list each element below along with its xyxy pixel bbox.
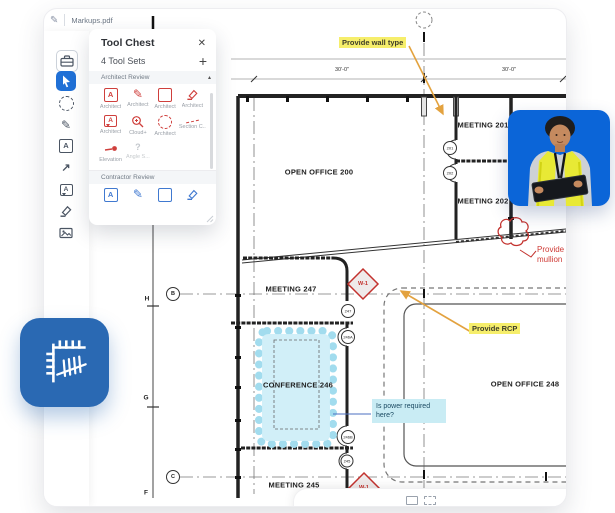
app-window: OPEN OFFICE 200 MEETING 201 MEETING 202 … bbox=[43, 8, 567, 507]
callout-icon: A bbox=[104, 115, 117, 127]
annotation-power-question[interactable]: Is power required here? bbox=[372, 399, 446, 423]
rectangle-icon bbox=[158, 188, 172, 202]
lasso-icon bbox=[59, 96, 74, 111]
door-tag: 246A bbox=[343, 335, 352, 340]
tab-title: Markups.pdf bbox=[71, 16, 112, 25]
room-label-meeting-202: MEETING 202 bbox=[458, 197, 509, 206]
text-box-icon: A bbox=[59, 139, 73, 153]
annotation-provide-mullion[interactable]: Provide mullion bbox=[537, 245, 564, 264]
ruler-letter-g: G bbox=[143, 395, 148, 402]
page-view-icon[interactable] bbox=[406, 496, 418, 505]
room-label-meeting-247: MEETING 247 bbox=[266, 285, 317, 294]
tool-architect-cloud[interactable]: Architect bbox=[152, 115, 179, 139]
worker-illustration bbox=[508, 110, 610, 206]
tool-architect-highlighter[interactable]: Architect bbox=[179, 88, 206, 112]
door-tag: 247 bbox=[345, 309, 352, 314]
annotation-provide-rcp[interactable]: Provide RCP bbox=[469, 323, 520, 334]
worker-photo-card bbox=[508, 110, 610, 206]
tool-architect-rectangle[interactable]: Architect bbox=[152, 88, 179, 112]
door-tag: 201 bbox=[447, 146, 454, 151]
takeoff-ruler-icon bbox=[34, 332, 96, 394]
markup-toolbar: ✎ A ↗ A bbox=[44, 31, 89, 506]
ruler-letter-h: H bbox=[145, 296, 150, 303]
section-line-icon bbox=[186, 120, 199, 124]
select-tool-button[interactable] bbox=[56, 71, 76, 91]
dimension-label: 30'-0" bbox=[502, 67, 516, 73]
pen-icon: ✎ bbox=[133, 188, 143, 200]
scroll-up-icon[interactable]: ▴ bbox=[208, 74, 211, 81]
grid-bubble-c: C bbox=[171, 474, 175, 480]
magnifier-plus-icon bbox=[131, 115, 144, 128]
section-contractor-review[interactable]: Contractor Review bbox=[89, 171, 216, 184]
add-tool-set-button[interactable]: + bbox=[199, 56, 207, 66]
pen-icon: ✎ bbox=[61, 119, 71, 131]
tool-chest-icon bbox=[58, 52, 76, 70]
highlighter-tool-button[interactable] bbox=[56, 201, 76, 221]
cloud-icon bbox=[158, 115, 172, 129]
question-mark-icon: ? bbox=[135, 142, 141, 152]
panel-title: Tool Chest bbox=[101, 37, 154, 49]
panel-scrollbar[interactable] bbox=[210, 93, 213, 169]
image-icon bbox=[58, 225, 74, 241]
tool-contractor-rectangle[interactable] bbox=[152, 188, 179, 206]
measurement-app-icon bbox=[20, 318, 109, 407]
spread-view-icon[interactable] bbox=[424, 496, 436, 505]
text-box-tool-button[interactable]: A bbox=[56, 136, 76, 156]
ruler-letter-f: F bbox=[144, 490, 148, 497]
close-icon[interactable]: ✕ bbox=[198, 38, 206, 49]
tool-contractor-textbox[interactable]: A bbox=[97, 188, 124, 206]
door-tag: 202 bbox=[447, 171, 454, 176]
edit-pen-icon: ✎ bbox=[50, 15, 58, 26]
text-box-icon: A bbox=[104, 188, 118, 202]
grid-bubble-b: B bbox=[171, 291, 175, 297]
resize-handle[interactable] bbox=[206, 215, 214, 223]
room-label-conference-246: CONFERENCE 246 bbox=[263, 381, 333, 390]
highlighter-icon bbox=[186, 188, 199, 201]
tool-elevation[interactable]: Elevation bbox=[97, 142, 124, 166]
highlighter-icon bbox=[186, 88, 199, 101]
text-box-icon: A bbox=[104, 88, 118, 102]
tool-chest-panel: Tool Chest ✕ 4 Tool Sets + Architect Rev… bbox=[89, 29, 216, 225]
pen-icon: ✎ bbox=[133, 88, 143, 100]
elevation-marker-icon bbox=[104, 142, 118, 155]
tab-divider bbox=[64, 14, 65, 26]
tool-sets-count: 4 Tool Sets bbox=[101, 56, 145, 66]
pen-tool-button[interactable]: ✎ bbox=[56, 115, 76, 135]
select-cursor-icon bbox=[57, 72, 75, 90]
document-tab[interactable]: ✎ Markups.pdf bbox=[44, 9, 113, 31]
bottom-navigation-bar bbox=[293, 488, 567, 507]
callout-icon: A bbox=[60, 184, 73, 196]
lasso-tool-button[interactable] bbox=[56, 93, 76, 113]
tool-unknown[interactable]: ? Angle S... bbox=[124, 142, 151, 166]
room-label-open-office-248: OPEN OFFICE 248 bbox=[491, 380, 559, 389]
tool-cloud-plus[interactable]: Cloud+ bbox=[124, 115, 151, 139]
door-tag: 245 bbox=[344, 459, 351, 464]
door-tag: 246B bbox=[343, 435, 352, 440]
image-tool-button[interactable] bbox=[56, 223, 76, 243]
tool-chest-button[interactable] bbox=[56, 50, 78, 72]
section-architect-review[interactable]: Architect Review ▴ bbox=[89, 71, 216, 84]
dimension-label: 30'-0" bbox=[335, 67, 349, 73]
wall-tag-w1[interactable]: W-1 bbox=[358, 281, 368, 287]
room-label-open-office-200: OPEN OFFICE 200 bbox=[285, 168, 353, 177]
tool-section-cut[interactable]: Section C... bbox=[179, 115, 206, 139]
arrow-icon: ↗ bbox=[61, 163, 70, 174]
marketing-canvas: OPEN OFFICE 200 MEETING 201 MEETING 202 … bbox=[0, 0, 615, 513]
tool-architect-callout[interactable]: A Architect bbox=[97, 115, 124, 139]
annotation-provide-wall-type[interactable]: Provide wall type bbox=[339, 37, 406, 48]
tool-architect-textbox[interactable]: A Architect bbox=[97, 88, 124, 112]
callout-tool-button[interactable]: A bbox=[56, 180, 76, 200]
tool-contractor-highlighter[interactable] bbox=[179, 188, 206, 206]
highlighter-icon bbox=[59, 204, 73, 218]
tool-architect-pen[interactable]: ✎ Architect bbox=[124, 88, 151, 112]
rectangle-icon bbox=[158, 88, 172, 102]
tool-contractor-pen[interactable]: ✎ bbox=[124, 188, 151, 206]
room-label-meeting-201: MEETING 201 bbox=[458, 121, 509, 130]
arrow-tool-button[interactable]: ↗ bbox=[56, 158, 76, 178]
